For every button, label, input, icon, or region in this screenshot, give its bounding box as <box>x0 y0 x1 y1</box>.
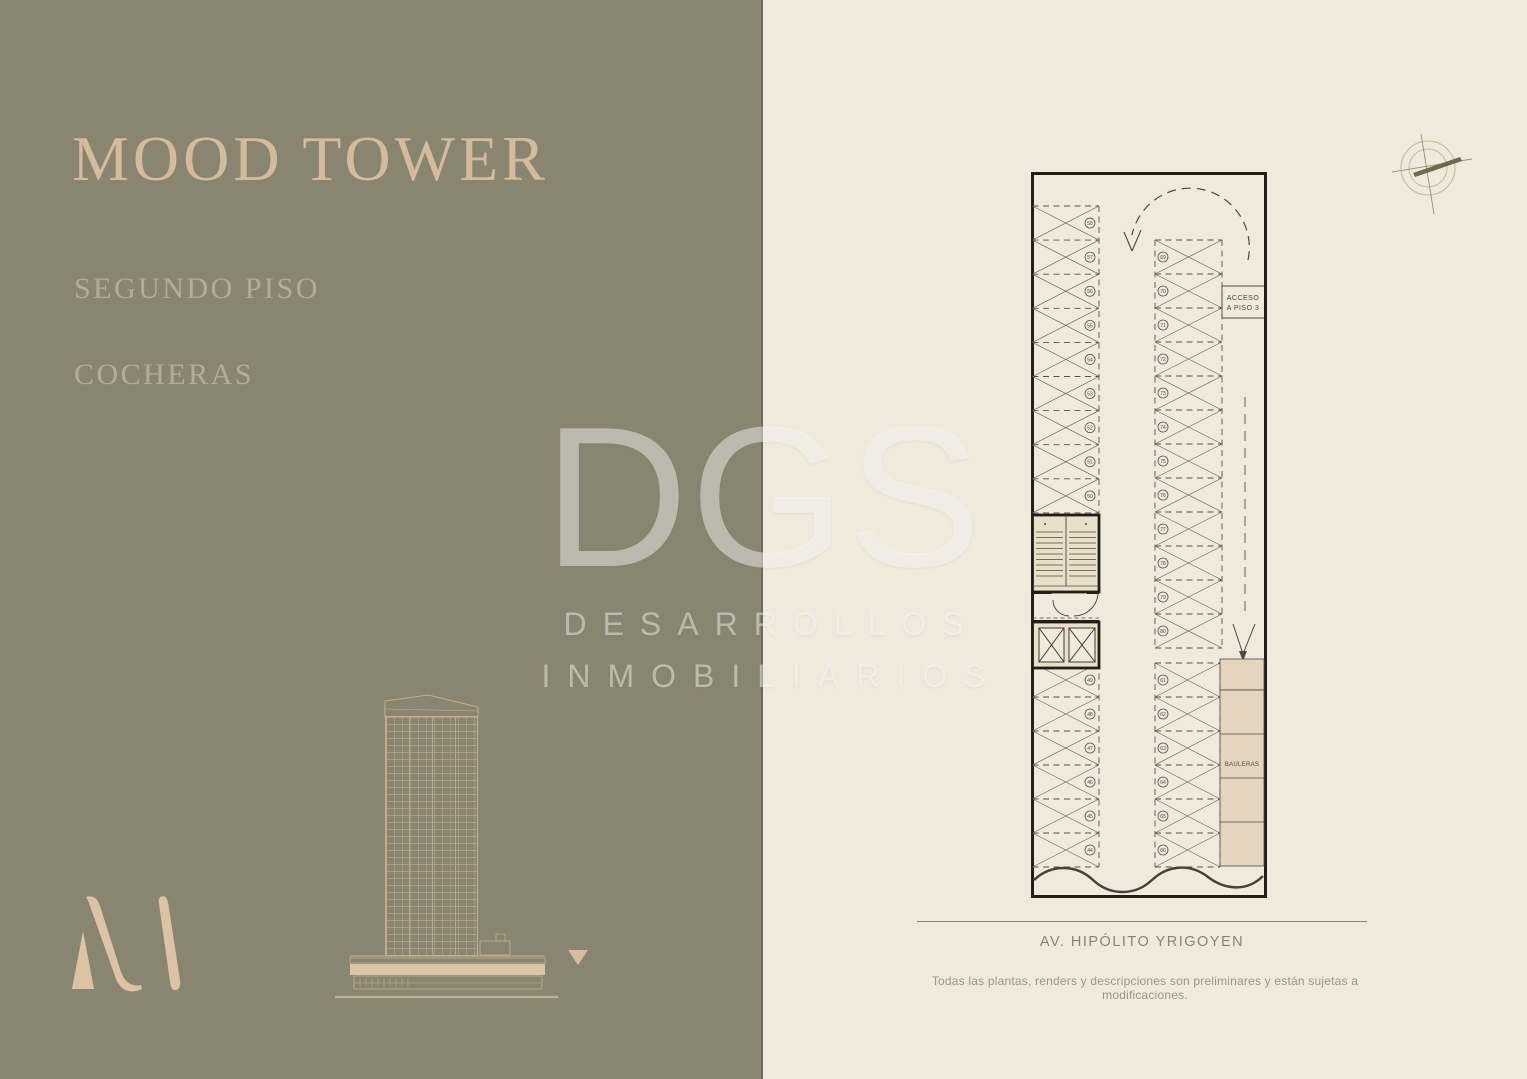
subtitle-floor: SEGUNDO PISO <box>74 272 320 306</box>
parking-space-number: 64 <box>1160 780 1166 786</box>
parking-space-number: 51 <box>1087 460 1093 466</box>
bauleras-strip: BAULERAS <box>1220 659 1264 866</box>
disclaimer-text: Todas las plantas, renders y descripcion… <box>895 974 1395 1002</box>
parking-space-number: 70 <box>1160 289 1166 295</box>
parking-space-number: 52 <box>1087 426 1093 432</box>
parking-space-number: 63 <box>1160 746 1166 752</box>
parking-space-number: 72 <box>1160 357 1166 363</box>
parking-space-number: 77 <box>1160 527 1166 533</box>
parking-floor-plan: 5857565554535251506970717273747576777879… <box>1027 168 1271 902</box>
street-label: AV. HIPÓLITO YRIGOYEN <box>917 934 1367 950</box>
parking-space-number: 56 <box>1087 289 1093 295</box>
m-logo-main-stroke <box>86 896 142 991</box>
parking-space-number: 75 <box>1160 459 1166 465</box>
parking-space-number: 71 <box>1160 323 1166 329</box>
door-arc-large <box>1074 592 1098 616</box>
parking-space-number: 50 <box>1087 494 1093 500</box>
parking-space-number: 61 <box>1160 678 1166 684</box>
parking-space-number: 48 <box>1087 712 1093 718</box>
parking-space-number: 78 <box>1160 561 1166 567</box>
parking-space-number: 53 <box>1087 391 1093 397</box>
m-monogram-logo <box>60 885 195 1000</box>
acceso-label-line1: ACCESO <box>1227 295 1260 302</box>
parking-space-number: 45 <box>1087 814 1093 820</box>
brochure-page: MOOD TOWER SEGUNDO PISO COCHERAS DGS DES… <box>0 0 1527 1079</box>
parking-space-number: 55 <box>1087 323 1093 329</box>
parking-space-number: 57 <box>1087 255 1093 261</box>
page-title: MOOD TOWER <box>72 122 549 196</box>
stairs-elevator-core <box>1033 515 1100 668</box>
uturn-arrow <box>1124 188 1249 260</box>
parking-space-number: 46 <box>1087 780 1093 786</box>
parking-space-number: 66 <box>1160 848 1166 854</box>
parking-space-number: 62 <box>1160 712 1166 718</box>
break-wave-line <box>1034 868 1263 892</box>
parking-space-number: 69 <box>1160 255 1166 261</box>
acceso-label-line2: A PISO 3 <box>1227 305 1260 312</box>
parking-space-number: 65 <box>1160 814 1166 820</box>
bauleras-label: BAULERAS <box>1225 762 1259 768</box>
parking-space-number: 54 <box>1087 357 1093 363</box>
parking-space-number: 80 <box>1160 629 1166 635</box>
compass-icon <box>1392 132 1476 216</box>
parking-space-number: 58 <box>1087 221 1093 227</box>
acceso-box: ACCESO A PISO 3 <box>1222 286 1264 318</box>
parking-space-number: 74 <box>1160 425 1166 431</box>
parking-space-number: 73 <box>1160 391 1166 397</box>
tower-elevation-illustration <box>330 678 630 1008</box>
parking-space-number: 47 <box>1087 746 1093 752</box>
m-logo-right-stroke <box>159 896 181 990</box>
door-arc-small <box>1053 600 1069 616</box>
down-triangle-marker <box>568 950 588 965</box>
parking-space-number: 76 <box>1160 493 1166 499</box>
ramp-path <box>1233 397 1255 661</box>
parking-space-number: 79 <box>1160 595 1166 601</box>
m-logo-left-wedge <box>72 931 94 989</box>
street-divider-line <box>917 921 1367 922</box>
panel-divider <box>761 0 763 1079</box>
parking-space-number: 44 <box>1087 848 1093 854</box>
parking-space-number: 49 <box>1087 678 1093 684</box>
subtitle-type: COCHERAS <box>74 358 254 392</box>
